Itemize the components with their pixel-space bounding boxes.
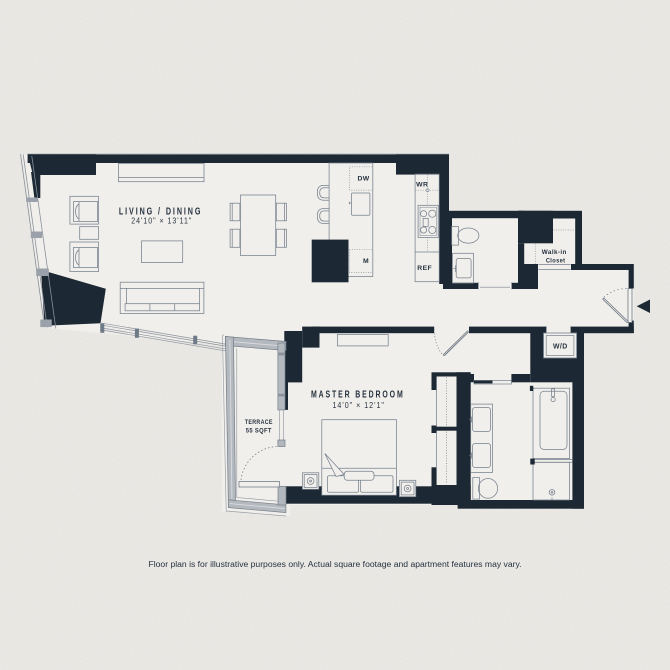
svg-text:REF: REF [417, 265, 432, 272]
svg-text:Closet: Closet [546, 257, 566, 264]
svg-text:Floor plan is for illustrative: Floor plan is for illustrative purposes … [149, 560, 522, 569]
svg-text:24'10" × 13'11": 24'10" × 13'11" [131, 216, 192, 225]
svg-text:14'0" × 12'1": 14'0" × 12'1" [333, 401, 385, 410]
svg-text:W/D: W/D [553, 344, 568, 351]
svg-text:MASTER BEDROOM: MASTER BEDROOM [311, 390, 405, 401]
svg-text:M: M [363, 258, 369, 265]
svg-text:55 SQFT: 55 SQFT [246, 428, 272, 435]
svg-text:TERRACE: TERRACE [245, 419, 273, 426]
svg-text:WR: WR [416, 181, 428, 188]
svg-text:DW: DW [357, 176, 369, 183]
svg-text:Walk-in: Walk-in [542, 249, 567, 256]
